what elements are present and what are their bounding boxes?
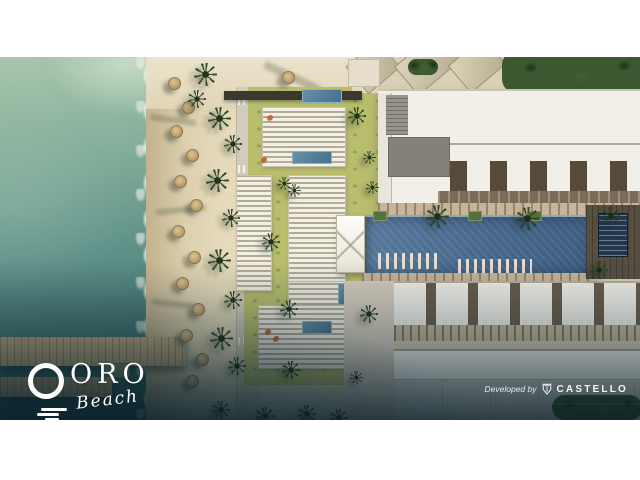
- orange-umbrella: [266, 329, 271, 334]
- palm-tree: [363, 151, 376, 164]
- beach-umbrella: [170, 125, 183, 138]
- sail-canopy: [336, 215, 365, 273]
- palm-tree: [282, 361, 300, 379]
- plunge-pool: [302, 89, 342, 103]
- palm-tree: [206, 169, 229, 192]
- beach-umbrella: [196, 353, 209, 366]
- pergola-deck: [258, 305, 346, 369]
- balcony-row: [450, 161, 640, 193]
- beach-umbrella: [180, 329, 193, 342]
- beach-umbrella: [186, 149, 199, 162]
- palm-tree: [256, 407, 274, 420]
- palm-tree: [224, 291, 242, 309]
- wave-line: [37, 413, 59, 416]
- palm-tree: [208, 249, 231, 272]
- palm-tree: [426, 205, 449, 228]
- palm-tree: [350, 371, 363, 384]
- palm-tree: [360, 305, 378, 323]
- planter-box: [468, 211, 482, 221]
- plunge-pool: [302, 321, 332, 334]
- palm-tree: [516, 207, 539, 230]
- palm-tree: [194, 63, 217, 86]
- wave-line: [41, 408, 67, 411]
- planter-box: [373, 211, 387, 221]
- tree-canopy: [502, 57, 640, 93]
- palm-tree: [366, 181, 379, 194]
- townhouse-row: [394, 281, 640, 327]
- developer-credit: Developed by CASTELLO: [485, 383, 628, 395]
- palm-tree: [330, 409, 348, 420]
- tree-canopy: [552, 395, 640, 420]
- castello-crest-icon: [542, 383, 552, 395]
- palm-tree: [262, 233, 280, 251]
- palm-tree: [210, 327, 233, 350]
- palm-tree: [228, 357, 246, 375]
- roof-panel: [386, 95, 408, 135]
- palm-tree: [288, 184, 301, 197]
- walkway: [394, 341, 640, 349]
- poster-frame: ORO Beach Developed by CASTELLO: [0, 0, 640, 480]
- sun-over-waves-icon: [28, 363, 64, 399]
- developer-name: CASTELLO: [557, 384, 629, 395]
- palm-tree: [224, 135, 242, 153]
- palm-tree: [188, 90, 206, 108]
- beach-umbrella: [190, 199, 203, 212]
- patio-row: [394, 325, 640, 341]
- beach-umbrella: [176, 277, 189, 290]
- beach-umbrella: [172, 225, 185, 238]
- roof-edge: [450, 143, 640, 145]
- logo-subtitle: Beach: [75, 386, 140, 414]
- beach-umbrella: [282, 71, 295, 84]
- out-building: [348, 59, 380, 87]
- walkway-edge: [460, 403, 640, 404]
- tree-canopy: [408, 59, 438, 75]
- palm-tree: [348, 107, 366, 125]
- orange-umbrella: [268, 115, 273, 120]
- palm-tree: [208, 107, 231, 130]
- credit-prefix: Developed by: [485, 384, 537, 394]
- pool-loungers: [378, 253, 440, 269]
- beach-umbrella: [174, 175, 187, 188]
- roof-terrace: [388, 137, 450, 177]
- palm-tree: [298, 405, 316, 420]
- palm-tree: [280, 300, 298, 318]
- palm-tree: [602, 207, 620, 225]
- oro-beach-logo: ORO Beach: [24, 357, 184, 415]
- palm-tree: [590, 261, 608, 279]
- residential-block-north: [378, 89, 640, 207]
- orange-umbrella: [274, 336, 279, 341]
- pool-loungers: [458, 259, 532, 273]
- aerial-render: ORO Beach Developed by CASTELLO: [0, 57, 640, 420]
- residential-cluster: [344, 361, 394, 420]
- palm-tree: [222, 209, 240, 227]
- orange-umbrella: [262, 157, 267, 162]
- beach-umbrella: [186, 375, 199, 388]
- beach-umbrella: [168, 77, 181, 90]
- wave-line: [45, 418, 59, 420]
- beach-umbrella: [188, 251, 201, 264]
- beach-umbrella: [192, 303, 205, 316]
- plunge-pool: [292, 151, 332, 164]
- palm-tree: [212, 401, 230, 419]
